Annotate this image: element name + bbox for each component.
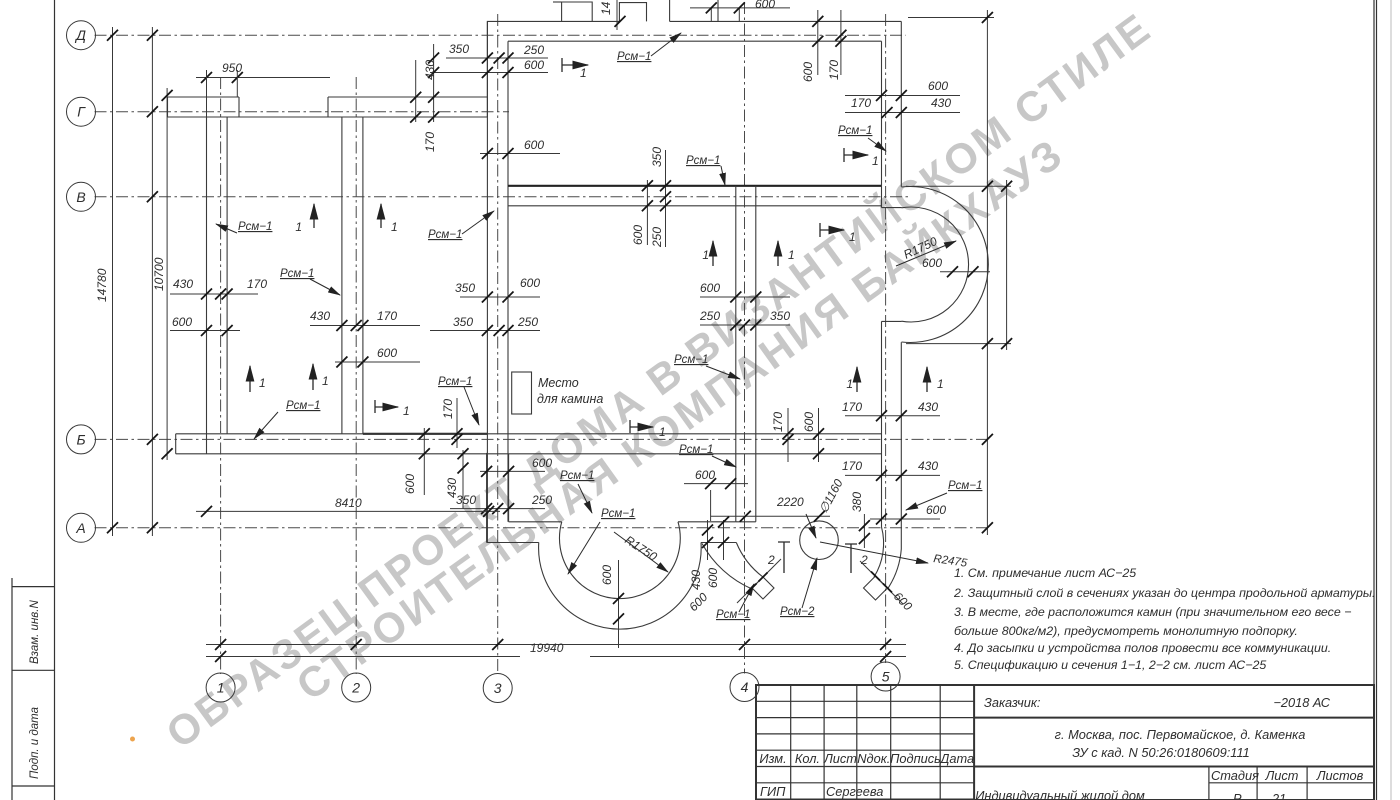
svg-text:Рсм−1: Рсм−1: [674, 354, 708, 366]
svg-text:Р: Р: [1233, 791, 1242, 800]
svg-text:600: 600: [172, 315, 192, 329]
svg-text:Лист: Лист: [823, 751, 857, 766]
svg-text:350: 350: [453, 315, 473, 329]
svg-text:21: 21: [1271, 791, 1286, 800]
svg-text:Подп. и дата: Подп. и дата: [29, 707, 41, 779]
svg-text:ЗУ с кад. N 50:26:0180609:111: ЗУ с кад. N 50:26:0180609:111: [1072, 745, 1250, 760]
svg-text:больше 800кг/м2), предусмотрет: больше 800кг/м2), предусмотреть монолитн…: [954, 624, 1298, 638]
svg-text:380: 380: [850, 492, 864, 512]
svg-text:Сергеева: Сергеева: [826, 784, 883, 799]
svg-text:170: 170: [377, 309, 397, 323]
svg-text:4. До засыпки и устройства по: 4. До засыпки и устройства полов провест…: [954, 641, 1331, 655]
svg-text:1: 1: [322, 374, 329, 388]
svg-text:1: 1: [391, 220, 398, 234]
svg-text:950: 950: [222, 61, 242, 75]
svg-text:600: 600: [524, 138, 544, 152]
svg-text:1: 1: [259, 376, 266, 390]
svg-text:1: 1: [217, 680, 225, 696]
svg-text:170: 170: [842, 400, 862, 414]
svg-text:430: 430: [445, 478, 459, 498]
svg-text:Nдок.: Nдок.: [857, 751, 890, 766]
svg-text:Дата: Дата: [938, 751, 974, 766]
svg-text:2: 2: [351, 680, 360, 696]
svg-text:1: 1: [937, 377, 944, 391]
svg-text:Стадия: Стадия: [1211, 768, 1259, 783]
svg-text:1: 1: [849, 230, 856, 244]
svg-text:Б: Б: [76, 431, 85, 447]
svg-text:170: 170: [771, 412, 785, 432]
svg-text:Рсм−1: Рсм−1: [838, 125, 872, 137]
svg-text:Лист: Лист: [1265, 768, 1299, 783]
svg-text:600: 600: [755, 0, 775, 11]
svg-text:170: 170: [423, 132, 437, 152]
svg-text:600: 600: [520, 276, 540, 290]
svg-text:5: 5: [882, 669, 890, 685]
svg-text:Подпись: Подпись: [890, 751, 941, 766]
svg-text:170: 170: [842, 459, 862, 473]
svg-text:Рсм−1: Рсм−1: [438, 376, 472, 388]
svg-text:Рсм−2: Рсм−2: [780, 606, 815, 618]
svg-text:Место: Место: [538, 376, 579, 390]
svg-text:170: 170: [827, 60, 841, 80]
svg-text:3: 3: [494, 680, 502, 696]
svg-text:350: 350: [449, 42, 469, 56]
svg-text:1: 1: [788, 248, 795, 262]
svg-text:1. См. примечание лист АС−25: 1. См. примечание лист АС−25: [954, 566, 1136, 580]
svg-text:350: 350: [455, 281, 475, 295]
svg-text:600: 600: [403, 474, 417, 494]
svg-text:1: 1: [846, 377, 853, 391]
svg-text:430: 430: [918, 459, 938, 473]
svg-text:600: 600: [928, 79, 948, 93]
svg-text:250: 250: [650, 227, 664, 248]
svg-text:Д: Д: [74, 27, 86, 43]
svg-text:19940: 19940: [530, 641, 564, 655]
svg-text:2220: 2220: [776, 495, 804, 509]
svg-text:8410: 8410: [335, 496, 362, 510]
svg-text:Рсм−1: Рсм−1: [686, 155, 720, 167]
svg-text:Заказчик:: Заказчик:: [984, 695, 1041, 710]
svg-text:170: 170: [247, 277, 267, 291]
svg-text:Рсм−1: Рсм−1: [679, 444, 713, 456]
svg-text:600: 600: [631, 225, 645, 245]
svg-text:для камина: для камина: [537, 392, 603, 406]
svg-text:Рсм−1: Рсм−1: [716, 609, 750, 621]
svg-text:Рсм−1: Рсм−1: [280, 268, 314, 280]
svg-text:250: 250: [531, 493, 552, 507]
svg-text:Кол.: Кол.: [795, 751, 820, 766]
svg-text:430: 430: [310, 309, 330, 323]
svg-text:600: 600: [801, 62, 815, 82]
svg-text:600: 600: [600, 565, 614, 585]
svg-text:430: 430: [689, 570, 703, 590]
svg-text:600: 600: [700, 281, 720, 295]
svg-text:600: 600: [706, 568, 720, 588]
svg-text:1: 1: [295, 220, 302, 234]
svg-text:Рсм−1: Рсм−1: [238, 221, 272, 233]
svg-text:250: 250: [517, 315, 538, 329]
svg-text:350: 350: [650, 147, 664, 167]
svg-text:430: 430: [423, 60, 437, 80]
svg-text:1: 1: [580, 66, 587, 80]
svg-text:14: 14: [599, 1, 613, 15]
svg-text:430: 430: [173, 277, 193, 291]
svg-text:600: 600: [377, 346, 397, 360]
svg-text:600: 600: [524, 58, 544, 72]
svg-text:350: 350: [770, 309, 790, 323]
svg-text:Взам. инв.N: Взам. инв.N: [29, 600, 41, 664]
svg-text:170: 170: [851, 96, 871, 110]
svg-text:2: 2: [767, 553, 775, 567]
svg-text:Рсм−1: Рсм−1: [948, 480, 982, 492]
svg-text:Изм.: Изм.: [759, 751, 786, 766]
svg-text:430: 430: [931, 96, 951, 110]
svg-text:10700: 10700: [152, 257, 166, 291]
svg-text:600: 600: [695, 468, 715, 482]
svg-text:−2018 АС: −2018 АС: [1273, 695, 1330, 710]
svg-text:14780: 14780: [95, 268, 109, 302]
svg-text:Индивидуальный жилой дом: Индивидуальный жилой дом: [975, 788, 1145, 800]
svg-text:1: 1: [403, 404, 410, 418]
svg-text:1: 1: [872, 154, 879, 168]
svg-text:ГИП: ГИП: [760, 784, 786, 799]
svg-text:1: 1: [702, 248, 709, 262]
svg-text:2. Защитный слой в сечениях у: 2. Защитный слой в сечениях указан до це…: [953, 586, 1375, 600]
svg-text:г. Москва, пос. Первомайское,: г. Москва, пос. Первомайское, д. Каменка: [1055, 727, 1306, 742]
svg-text:600: 600: [926, 503, 946, 517]
svg-text:Рсм−1: Рсм−1: [617, 51, 651, 63]
svg-text:В: В: [76, 189, 85, 205]
svg-text:Листов: Листов: [1316, 768, 1364, 783]
svg-text:600: 600: [802, 412, 816, 432]
svg-text:250: 250: [699, 309, 720, 323]
svg-text:430: 430: [918, 400, 938, 414]
svg-text:170: 170: [441, 399, 455, 419]
svg-text:1: 1: [659, 425, 666, 439]
svg-text:Рсм−1: Рсм−1: [601, 508, 635, 520]
svg-text:Рсм−1: Рсм−1: [286, 400, 320, 412]
svg-text:600: 600: [532, 456, 552, 470]
svg-text:600: 600: [922, 256, 942, 270]
svg-text:А: А: [75, 520, 85, 536]
svg-text:250: 250: [523, 43, 544, 57]
svg-text:350: 350: [456, 493, 476, 507]
svg-text:4: 4: [741, 679, 749, 695]
svg-text:Рсм−1: Рсм−1: [560, 470, 594, 482]
svg-text:Рсм−1: Рсм−1: [428, 229, 462, 241]
svg-text:3. В месте, где расположится: 3. В месте, где расположится камин (при …: [954, 605, 1351, 619]
svg-text:5. Спецификацию и сечения 1−1: 5. Спецификацию и сечения 1−1, 2−2 см. л…: [954, 658, 1266, 672]
